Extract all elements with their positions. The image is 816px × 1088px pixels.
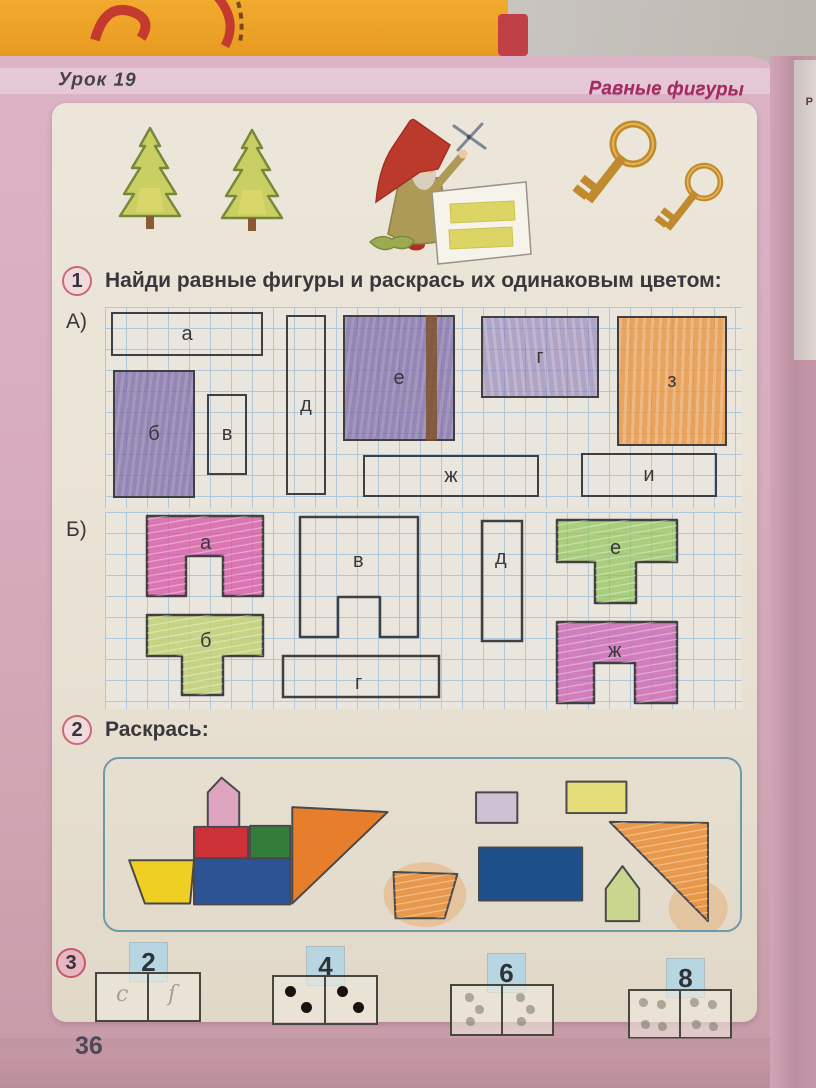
shape-zh-label: ж bbox=[444, 465, 457, 488]
domino-cell bbox=[274, 977, 324, 1023]
key-icon bbox=[572, 116, 661, 215]
shape-g: г bbox=[481, 316, 599, 398]
domino-dot bbox=[353, 1002, 364, 1013]
domino-dot bbox=[709, 1022, 718, 1031]
domino-6 bbox=[450, 984, 554, 1036]
shape-b-e-label: е bbox=[610, 537, 621, 559]
shape-e-label: е bbox=[393, 367, 404, 390]
shape-b-zh-label: ж bbox=[608, 640, 622, 662]
shape-b-b-label: б bbox=[200, 630, 211, 652]
brown-crayon-stripe bbox=[426, 315, 437, 441]
page-bottom-shade bbox=[0, 1038, 790, 1088]
paper-sheet bbox=[432, 182, 531, 264]
task2-shapes bbox=[105, 759, 740, 930]
domino-dot bbox=[641, 1020, 650, 1029]
domino-dot bbox=[657, 1000, 666, 1009]
domino-dot bbox=[516, 993, 525, 1002]
domino-dot bbox=[639, 998, 648, 1007]
gnome-icon bbox=[370, 120, 531, 265]
shape-v: в bbox=[207, 394, 247, 475]
shape-b: б bbox=[113, 370, 195, 498]
shape-g-label: г bbox=[536, 346, 543, 369]
other-book-cover bbox=[0, 0, 508, 56]
domino-cell bbox=[679, 991, 730, 1037]
task2-picture-box bbox=[103, 757, 742, 932]
domino-dot bbox=[690, 998, 699, 1007]
workbook-page: Урок 19 Равные фигуры bbox=[0, 56, 790, 1088]
navy-rectangle bbox=[479, 847, 582, 900]
shape-zh: ж bbox=[363, 455, 539, 497]
shape-b-label: б bbox=[148, 423, 159, 446]
task3-number-badge: 3 bbox=[56, 948, 86, 978]
other-book-cover-art bbox=[0, 0, 508, 56]
next-page-sliver: Р bbox=[794, 60, 816, 360]
domino-dot bbox=[475, 1005, 484, 1014]
shape-a-label: а bbox=[181, 323, 192, 346]
topic-title: Равные фигуры bbox=[589, 78, 744, 101]
domino-dot bbox=[285, 986, 296, 997]
shape-e: е bbox=[343, 315, 455, 441]
other-book-spine bbox=[498, 14, 528, 56]
domino-cell: c bbox=[97, 974, 147, 1020]
section-a-grid: а б в д е г з ж и bbox=[105, 307, 742, 508]
page-header: Урок 19 Равные фигуры bbox=[0, 52, 790, 107]
domino-2: c ſ bbox=[95, 972, 201, 1022]
shape-a: а bbox=[111, 312, 263, 356]
yellow-rectangle bbox=[566, 782, 626, 813]
photo-background: Урок 19 Равные фигуры bbox=[0, 0, 816, 1088]
shape-i: и bbox=[581, 453, 717, 497]
task1-text: Найди равные фигуры и раскрась их одинак… bbox=[105, 269, 722, 293]
shape-z: з bbox=[617, 316, 727, 446]
domino-dot bbox=[465, 993, 474, 1002]
section-b-grid: а б в г д е ж bbox=[105, 512, 742, 709]
section-a-label: А) bbox=[66, 310, 87, 334]
shape-b-v bbox=[300, 517, 418, 637]
domino-4 bbox=[272, 975, 378, 1025]
ship-hull-rect bbox=[194, 858, 290, 904]
domino-dot bbox=[517, 1017, 526, 1026]
ship-sail-triangle bbox=[292, 807, 387, 903]
green-scarf-icon bbox=[370, 236, 414, 249]
shape-v-label: в bbox=[222, 423, 233, 446]
pencil-mark: c bbox=[116, 982, 128, 1007]
domino-8 bbox=[628, 989, 732, 1039]
next-page-header-text: Р bbox=[806, 96, 813, 108]
domino-cell bbox=[452, 986, 501, 1034]
domino-cell bbox=[630, 991, 679, 1037]
shape-b-g-label: г bbox=[355, 672, 362, 694]
lesson-title: Урок 19 bbox=[58, 69, 137, 92]
domino-dot bbox=[337, 986, 348, 997]
ship-bow-trapezoid bbox=[129, 860, 194, 903]
shape-i-label: и bbox=[643, 464, 654, 487]
domino-dot bbox=[658, 1022, 667, 1031]
lilac-square bbox=[476, 792, 517, 822]
shape-b-a-label: а bbox=[200, 532, 212, 554]
shape-d-label: д bbox=[300, 394, 312, 417]
domino-dot bbox=[526, 1005, 535, 1014]
pencil-mark: ſ bbox=[168, 982, 176, 1007]
domino-cell bbox=[324, 977, 376, 1023]
task1-number-badge: 1 bbox=[62, 266, 92, 296]
domino-cell bbox=[501, 986, 552, 1034]
section-b-shapes: а б в г д е ж bbox=[105, 512, 742, 709]
domino-dot bbox=[466, 1017, 475, 1026]
domino-cell: ſ bbox=[147, 974, 199, 1020]
fir-tree-icon bbox=[120, 128, 180, 229]
domino-dot bbox=[708, 1000, 717, 1009]
task2-number-badge: 2 bbox=[62, 715, 92, 745]
green-pentagon bbox=[606, 866, 639, 921]
section-b-label: Б) bbox=[66, 518, 87, 542]
ship-cabin-red-square bbox=[194, 827, 248, 858]
shape-z-label: з bbox=[667, 370, 676, 393]
key-icon bbox=[654, 159, 727, 240]
ship-cabin-green-square bbox=[250, 826, 290, 858]
domino-dot bbox=[301, 1002, 312, 1013]
shape-d: д bbox=[286, 315, 326, 495]
task2-text: Раскрась: bbox=[105, 718, 209, 742]
shape-b-d bbox=[482, 521, 522, 641]
ship-funnel-pentagon bbox=[208, 778, 239, 827]
page-number: 36 bbox=[75, 1032, 103, 1061]
shape-b-d-label: д bbox=[495, 547, 507, 569]
illustration bbox=[58, 106, 748, 270]
fir-tree-icon bbox=[222, 130, 282, 231]
shape-b-v-label: в bbox=[353, 550, 364, 572]
domino-dot bbox=[692, 1020, 701, 1029]
